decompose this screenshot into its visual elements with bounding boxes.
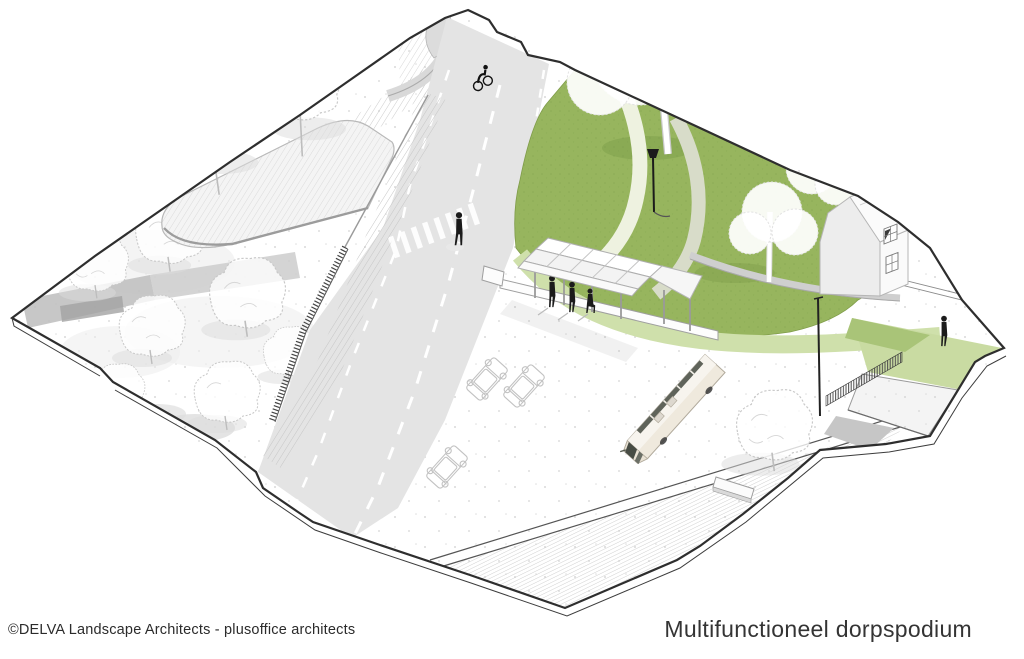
axonometric-drawing [0,0,1024,659]
footer-credit: ©DELVA Landscape Architects - plusoffice… [8,622,355,638]
footer-title: Multifunctioneel dorpspodium [664,616,972,643]
site-plan-illustration: ©DELVA Landscape Architects - plusoffice… [0,0,1024,659]
